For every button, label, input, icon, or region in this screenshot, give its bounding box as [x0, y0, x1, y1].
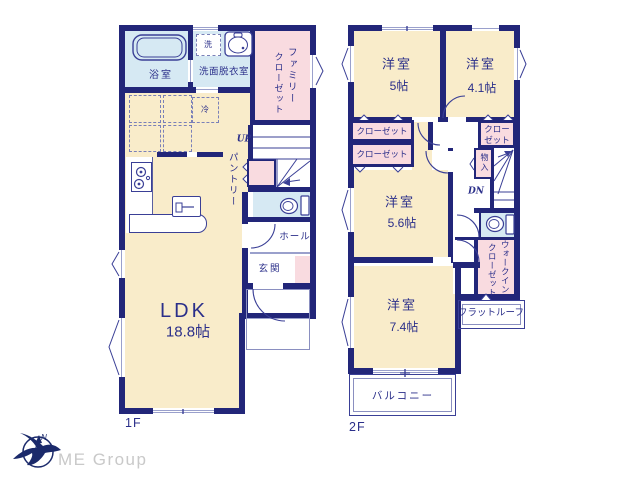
bedroom1-floor [354, 31, 440, 117]
room-label-hall: ホール [279, 232, 311, 242]
symbol-overlay: N [0, 0, 640, 480]
label-stairs-down: DN [468, 188, 484, 197]
room-label-family-closet-2: クローゼット [274, 52, 283, 115]
label-closet-right-2: ゼット [484, 136, 510, 145]
shoe-cabinet [295, 256, 310, 283]
window-line [373, 370, 438, 371]
wall [248, 187, 316, 192]
me-group-logo-icon [13, 433, 61, 467]
company-name: ME Group [58, 451, 147, 468]
label-closet-right-1: クロー [484, 125, 510, 134]
window-line [382, 27, 433, 28]
cupboard-dashed [163, 125, 192, 152]
stove [131, 162, 152, 192]
wall [428, 122, 433, 150]
window-line [312, 55, 313, 88]
window-line [472, 28, 499, 29]
cupboard-dashed [129, 95, 161, 123]
wall [474, 240, 478, 294]
porch-step-line [247, 318, 309, 319]
wall [455, 237, 520, 240]
toilet2-floor [480, 212, 514, 237]
door-opening [448, 117, 466, 122]
bedroom2-floor [446, 31, 514, 117]
cupboard-dashed [163, 95, 192, 123]
door-opening [412, 117, 438, 122]
room-size-bedroom2: 4.1帖 [468, 82, 497, 94]
door-opening [242, 224, 248, 248]
room-label-bedroom2: 洋室 [466, 58, 496, 71]
window-line [193, 27, 218, 28]
toilet1-floor [253, 192, 310, 218]
label-closet-left-1: クローゼット [356, 127, 407, 136]
room-size-bedroom1: 5帖 [390, 80, 409, 92]
door-opening [448, 151, 453, 172]
wall [250, 120, 316, 125]
label-fridge: 冷 [201, 106, 209, 114]
window-line [350, 46, 351, 82]
label-wic-2: クローゼット [488, 243, 497, 297]
room-label-bedroom4: 洋室 [387, 299, 417, 312]
wall [125, 87, 255, 93]
window-line [373, 372, 438, 373]
floor-plan-canvas: N 浴室 洗 洗面脱衣室 ファミリー クローゼット 冷 UP パントリー ホール… [0, 0, 640, 480]
room-label-entrance: 玄関 [258, 264, 281, 274]
window-line [121, 250, 122, 278]
label-flat-roof: フラットルーフ [458, 308, 524, 318]
window-line [153, 412, 214, 413]
kitchen-sink [172, 196, 201, 217]
door-opening [196, 87, 218, 93]
cupboard-dashed [129, 125, 161, 152]
window-line [350, 297, 351, 348]
wall [248, 217, 316, 222]
compass-n-label: N [41, 433, 47, 442]
wall [239, 319, 245, 414]
room-label-washroom: 洗面脱衣室 [199, 67, 249, 77]
window-line [153, 410, 214, 411]
label-wic-1: ウォークイン [501, 240, 510, 294]
room-label-bath: 浴室 [149, 71, 173, 81]
pantry-shelf [247, 159, 276, 187]
window-line [350, 188, 351, 232]
window-line [517, 48, 518, 80]
room-label-pantry: パントリー [227, 152, 237, 207]
bedroom4-floor [354, 266, 455, 368]
label-storage: 物入 [480, 153, 488, 173]
label-stairs-up: UP [237, 136, 252, 145]
wall [479, 212, 481, 237]
label-closet-left-2: クローゼット [356, 150, 407, 159]
room-size-bedroom4: 7.4帖 [390, 321, 419, 333]
hall-step-line [250, 252, 310, 254]
room-size-bedroom3: 5.6帖 [388, 217, 417, 229]
room-size-ldk: 18.8帖 [166, 325, 210, 340]
porch-steps [246, 289, 310, 350]
door-opening [433, 257, 451, 263]
counter-edge [152, 157, 153, 215]
room-label-family-closet-1: ファミリー [286, 47, 296, 105]
label-laundry: 洗 [204, 41, 212, 49]
label-balcony: バルコニー [372, 391, 434, 402]
sliding-door-line [196, 89, 218, 90]
wall [440, 31, 446, 117]
window-line [382, 29, 433, 30]
room-label-bedroom1: 洋室 [382, 58, 412, 71]
floor-label-2f: 2F [349, 421, 366, 434]
room-label-bedroom3: 洋室 [385, 196, 415, 209]
room-label-ldk: LDK [160, 301, 208, 321]
window-line [121, 318, 122, 377]
wall [250, 31, 255, 120]
window-line [193, 29, 218, 30]
floor-label-1f: 1F [125, 417, 142, 430]
door-opening [187, 152, 197, 157]
sliding-door-line [190, 60, 191, 82]
